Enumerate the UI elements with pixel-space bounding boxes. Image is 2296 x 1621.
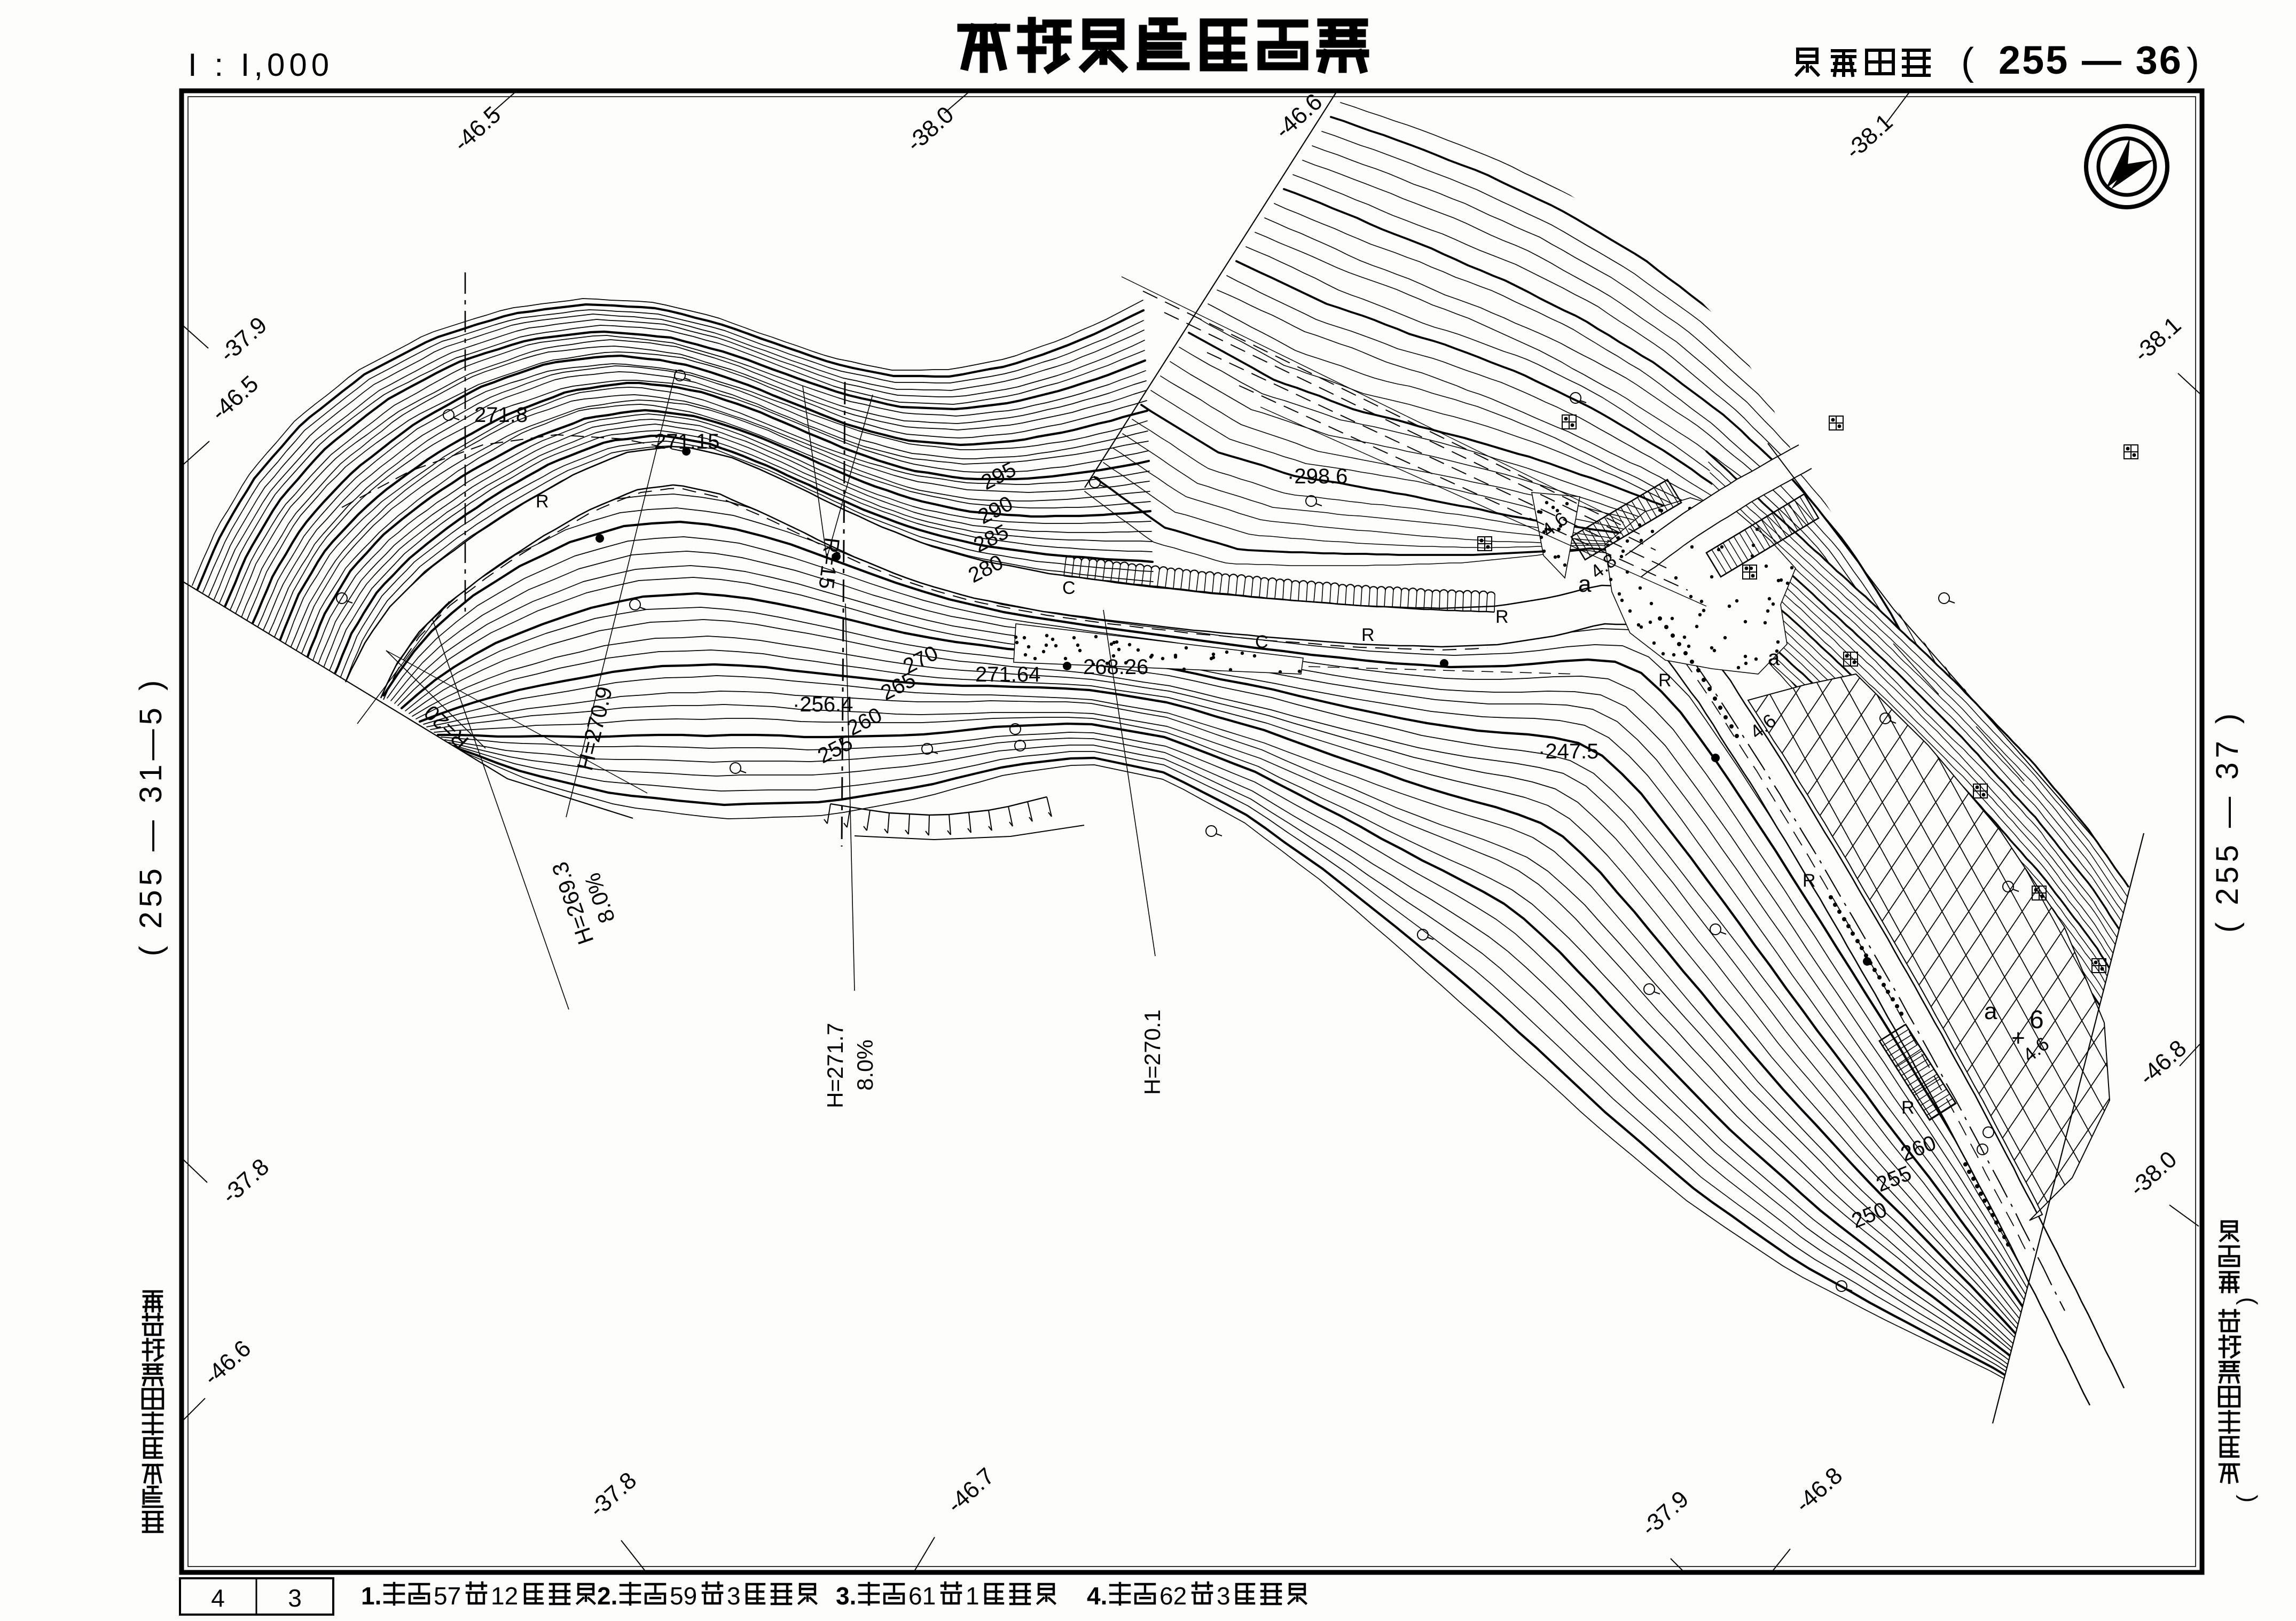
svg-text:4.: 4.	[1087, 1582, 1107, 1610]
svg-text:H=271.7: H=271.7	[822, 1023, 848, 1108]
svg-text:2.: 2.	[597, 1582, 617, 1610]
svg-text:·256.4: ·256.4	[793, 693, 853, 716]
svg-text:a: a	[1578, 571, 1592, 597]
svg-text:( 255 — 37 ): ( 255 — 37 )	[2210, 709, 2245, 933]
svg-text:59: 59	[670, 1582, 697, 1610]
svg-text:57: 57	[434, 1582, 461, 1610]
svg-text:61: 61	[908, 1582, 936, 1610]
svg-text:R: R	[1901, 1098, 1915, 1118]
svg-text:·298.6: ·298.6	[1287, 465, 1347, 488]
svg-text:1.: 1.	[361, 1582, 381, 1610]
svg-text:I : I,000: I : I,000	[188, 47, 333, 83]
svg-text:a: a	[1984, 998, 1997, 1024]
svg-text:3: 3	[727, 1582, 741, 1610]
svg-text:R: R	[1803, 871, 1816, 891]
svg-text:·247.5: ·247.5	[1538, 740, 1598, 763]
svg-text:271.64: 271.64	[975, 663, 1040, 686]
svg-text:C: C	[1255, 632, 1268, 652]
svg-text:+: +	[2011, 1025, 2025, 1051]
svg-text:H=270.1: H=270.1	[1140, 1009, 1165, 1095]
svg-text:268.26: 268.26	[1083, 655, 1148, 679]
svg-text:C: C	[1062, 578, 1076, 598]
svg-text:R: R	[536, 491, 549, 512]
svg-text:271.15: 271.15	[654, 430, 719, 453]
svg-text:R: R	[1361, 625, 1375, 645]
svg-text:8.0%: 8.0%	[852, 1039, 877, 1091]
svg-text:4: 4	[211, 1584, 225, 1612]
svg-text:(: (	[1961, 41, 1974, 83]
svg-text:): )	[2187, 41, 2199, 83]
svg-text:3.: 3.	[836, 1582, 856, 1610]
svg-text:): )	[2236, 1495, 2262, 1503]
svg-text:3: 3	[288, 1584, 302, 1612]
svg-text:271.8: 271.8	[474, 403, 528, 427]
svg-text:255 — 36: 255 — 36	[1999, 38, 2183, 82]
svg-text:12: 12	[491, 1582, 518, 1610]
svg-text:a: a	[1768, 646, 1780, 670]
svg-text:R: R	[1495, 607, 1509, 627]
svg-text:( 255 — 31—5 ): ( 255 — 31—5 )	[134, 676, 168, 957]
svg-text:R: R	[1658, 670, 1672, 691]
svg-text:(: (	[2236, 1297, 2262, 1305]
svg-text:62: 62	[1159, 1582, 1187, 1610]
svg-text:3: 3	[1217, 1582, 1231, 1610]
svg-text:1: 1	[966, 1582, 979, 1610]
svg-text:6: 6	[2029, 1006, 2044, 1034]
